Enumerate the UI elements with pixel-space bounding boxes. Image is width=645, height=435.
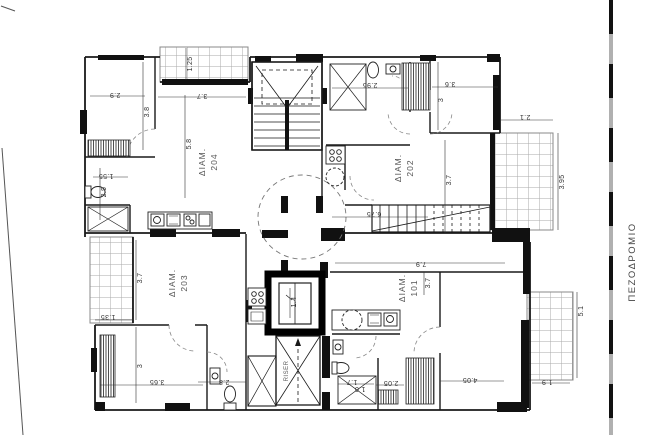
svg-text:ΔΙΑΜ.: ΔΙΑΜ. [167,269,177,297]
floor-plan: 2.9 3.8 1.25 3.7 2.95 3.6 3 2.1 3.95 5.8… [0,0,645,435]
dim: 1.55 [99,172,114,179]
bathroom-fixtures [85,62,400,410]
dim: 3.95 [559,175,566,190]
wardrobe-202 [402,63,430,110]
dim: 7.9 [416,260,427,267]
wc-bowl-202 [368,62,379,78]
dim: 3.7 [425,278,432,289]
dim: 3.7 [197,92,208,99]
sidewalk-label: ΠΕΖΟΔΡΟΜΙΟ [627,222,638,301]
dim: 4.05 [463,376,478,383]
svg-text:101: 101 [409,279,419,296]
dim: 3.7 [446,175,453,186]
dim: 3.6 [445,80,456,87]
balcony-top [160,47,248,82]
dim: 2.8 [219,378,230,385]
riser-label: RISER [284,360,290,381]
dim: 2.05 [384,379,399,386]
svg-text:204: 204 [209,153,219,170]
apartment-101-label: ΔΙΑΜ. 101 [397,274,419,302]
dim: 1.9 [542,378,553,385]
balcony-right-upper [492,133,553,230]
balcony-right-lower [527,292,573,380]
balcony-left [90,237,133,323]
dim: 3.65 [150,378,165,385]
dim: 5.1 [578,306,585,317]
dim: 2.9 [101,187,108,198]
dim: 1.0 [355,385,366,392]
wardrobe-101 [406,358,434,404]
dim: 6.75 [367,210,382,217]
staircase-exterior [372,205,490,232]
dim: 3 [438,98,445,102]
svg-text:ΔΙΑΜ.: ΔΙΑΜ. [393,154,403,182]
apartment-204-label: ΔΙΑΜ. 204 [197,148,219,176]
svg-text:ΔΙΑΜ.: ΔΙΑΜ. [197,148,207,176]
staircase-core [252,62,322,150]
apartment-202-label: ΔΙΑΜ. 202 [393,154,415,182]
wardrobe-203 [100,335,115,397]
dim: 2.1 [520,113,531,120]
svg-text:ΔΙΑΜ.: ΔΙΑΜ. [397,274,407,302]
apartment-203-label: ΔΙΑΜ. 203 [167,269,189,297]
apartment-labels: ΔΙΑΜ. 204 ΔΙΑΜ. 202 ΔΙΑΜ. 203 ΔΙΑΜ. 101 … [167,148,419,382]
dim: 1.7 [347,378,358,385]
svg-text:202: 202 [405,159,415,176]
dim: 1.35 [101,313,116,320]
dim: 5.8 [186,139,193,150]
dim: 3.8 [144,107,151,118]
cabinet-101 [378,390,398,404]
dim: 3 [137,364,144,368]
wc-bowl-203 [225,386,236,402]
dim: 2.9 [110,91,121,98]
floor-plan-drawing: 2.9 3.8 1.25 3.7 2.95 3.6 3 2.1 3.95 5.8… [0,0,645,435]
wc-tank [85,186,91,198]
wardrobe-204 [88,140,130,156]
dim: 1.25 [187,57,194,72]
svg-text:203: 203 [179,274,189,291]
dim: 2.95 [363,81,378,88]
dim: 1.4 [291,297,298,308]
dim: 3.7 [137,273,144,284]
